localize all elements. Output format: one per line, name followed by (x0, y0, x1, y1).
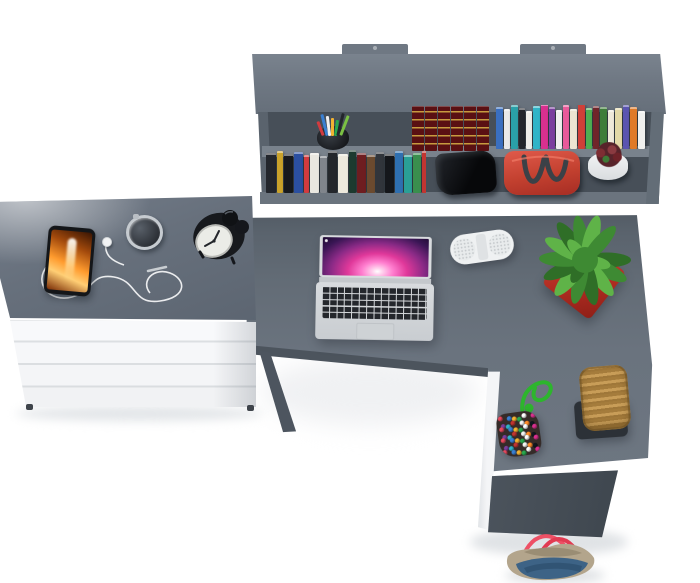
book-spine (519, 108, 525, 149)
bead (497, 416, 503, 422)
bead (524, 435, 530, 441)
book-spine (284, 154, 293, 193)
book-spine (578, 105, 585, 149)
speaker-grille-right (487, 232, 512, 257)
dresser-floor-shadow (16, 406, 262, 421)
flame-wallpaper (64, 238, 77, 282)
bead (523, 424, 529, 430)
red-handbag (504, 151, 580, 195)
book-spine (526, 111, 532, 149)
book-spine (638, 111, 645, 149)
book-spine (533, 106, 540, 149)
laptop-display (322, 237, 429, 277)
book-spine (623, 105, 629, 149)
bead (526, 446, 532, 452)
book-spine (422, 151, 426, 193)
book-spine (328, 151, 337, 193)
book-spine (395, 151, 403, 193)
book-spine (385, 154, 394, 193)
black-box (435, 150, 498, 196)
bead (512, 431, 518, 437)
book-row-upper (496, 105, 648, 149)
book-spine (266, 153, 276, 193)
book-spine (570, 109, 577, 149)
book-spine (357, 153, 366, 193)
book-spine (320, 156, 327, 193)
book-spine (630, 107, 637, 149)
encyclopedia-volume (412, 106, 424, 151)
laptop-trackpad (356, 323, 394, 341)
book-spine (304, 155, 309, 193)
pen-cup (316, 108, 350, 150)
smartphone-screen (46, 229, 92, 292)
plant-foliage (527, 206, 639, 314)
book-spine (593, 106, 599, 149)
screw-icon (373, 46, 377, 50)
book-spine (277, 151, 283, 193)
furniture-render-scene (0, 0, 700, 583)
bead (502, 449, 508, 455)
speaker-center-band (475, 233, 489, 260)
book-spine (586, 108, 592, 149)
book-spine (549, 107, 555, 149)
book-row-lower (266, 150, 426, 193)
bead (499, 427, 505, 433)
encyclopedia-set (412, 107, 494, 151)
book-spine (310, 153, 319, 193)
book-spine (338, 154, 348, 193)
bead (501, 438, 507, 444)
speaker-grille-left (452, 237, 477, 262)
wicker-stool-seat (578, 364, 631, 432)
bead (535, 446, 541, 452)
book-spine (556, 110, 562, 149)
laptop-keyboard (322, 286, 427, 320)
laptop (315, 235, 435, 341)
laptop-lid (319, 235, 432, 279)
laptop-logo-icon (325, 239, 328, 242)
encyclopedia-volume (451, 106, 463, 151)
book-spine (404, 155, 412, 193)
encyclopedia-volume (477, 106, 489, 151)
dresser-drawer-front (10, 319, 258, 409)
alarm-clock (192, 208, 250, 266)
dresser-foot-left (26, 404, 33, 410)
bead (513, 442, 519, 448)
book-spine (367, 155, 375, 193)
handbag-handles (504, 151, 580, 195)
succulent-blooms (590, 142, 628, 168)
bead-pouch (495, 409, 543, 458)
bead (530, 413, 536, 419)
encyclopedia-volume (438, 106, 450, 151)
book-spine (563, 105, 569, 149)
smartphone (43, 225, 96, 297)
encyclopedia-volume (464, 106, 476, 151)
bead (532, 424, 538, 430)
denim-tote-bag (494, 518, 606, 582)
watch (126, 215, 163, 250)
book-spine (511, 105, 518, 149)
bead (533, 435, 539, 441)
book-spine (541, 105, 548, 149)
book-spine (294, 152, 303, 193)
laptop-deck (315, 282, 434, 341)
bead (510, 420, 516, 426)
book-spine (496, 107, 503, 149)
screw-icon (551, 46, 555, 50)
book-spine (504, 109, 510, 149)
earbud-right (102, 237, 112, 247)
bead (521, 413, 527, 419)
watch-crown (133, 214, 139, 219)
dresser-foot-right (247, 405, 254, 411)
book-spine (413, 153, 421, 193)
book-spine (376, 152, 384, 193)
encyclopedia-volume (425, 106, 437, 151)
book-spine (349, 150, 356, 193)
